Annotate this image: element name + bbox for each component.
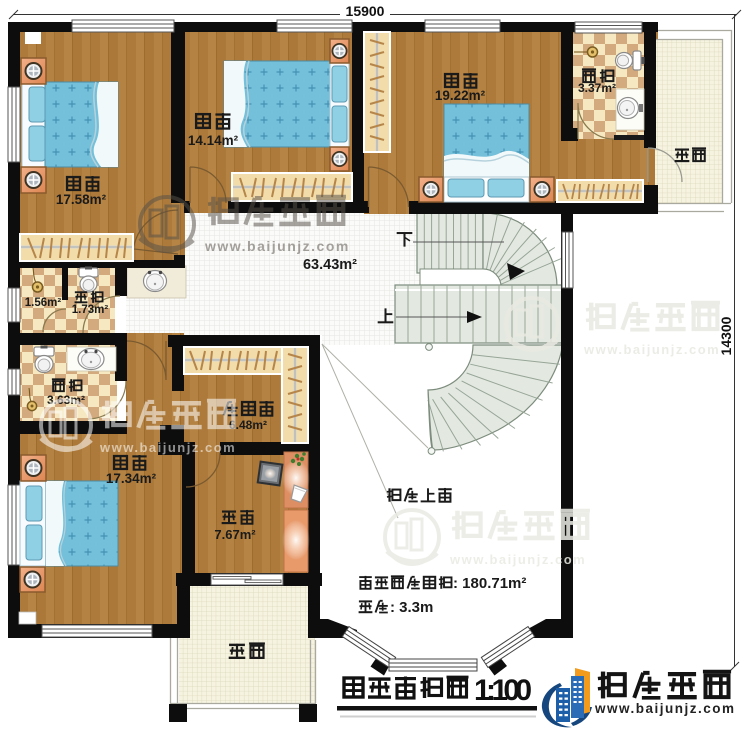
svg-text:17.34m²: 17.34m² bbox=[106, 471, 157, 486]
svg-text:19.22m²: 19.22m² bbox=[435, 88, 486, 103]
svg-text:: 3.3m: : 3.3m bbox=[390, 599, 433, 616]
svg-text:17.58m²: 17.58m² bbox=[56, 192, 107, 207]
svg-text:1.73m²: 1.73m² bbox=[72, 304, 109, 316]
svg-text:14300: 14300 bbox=[718, 316, 734, 355]
svg-text:63.43m²: 63.43m² bbox=[303, 257, 357, 273]
svg-text:1:100: 1:100 bbox=[474, 674, 532, 707]
svg-text:www.baijunjz.com: www.baijunjz.com bbox=[449, 552, 586, 567]
svg-text:15900: 15900 bbox=[346, 3, 385, 19]
svg-text:1.56m²: 1.56m² bbox=[25, 297, 62, 309]
svg-text:3.37m²: 3.37m² bbox=[578, 81, 616, 95]
svg-text:7.67m²: 7.67m² bbox=[214, 527, 256, 542]
svg-text:: 180.71m²: : 180.71m² bbox=[453, 575, 526, 592]
svg-text:www.baijunjz.com: www.baijunjz.com bbox=[99, 440, 236, 455]
svg-text:www.baijunjz.com: www.baijunjz.com bbox=[204, 238, 350, 254]
svg-text:14.14m²: 14.14m² bbox=[188, 133, 239, 148]
svg-text:www.baijunjz.com: www.baijunjz.com bbox=[583, 342, 720, 357]
